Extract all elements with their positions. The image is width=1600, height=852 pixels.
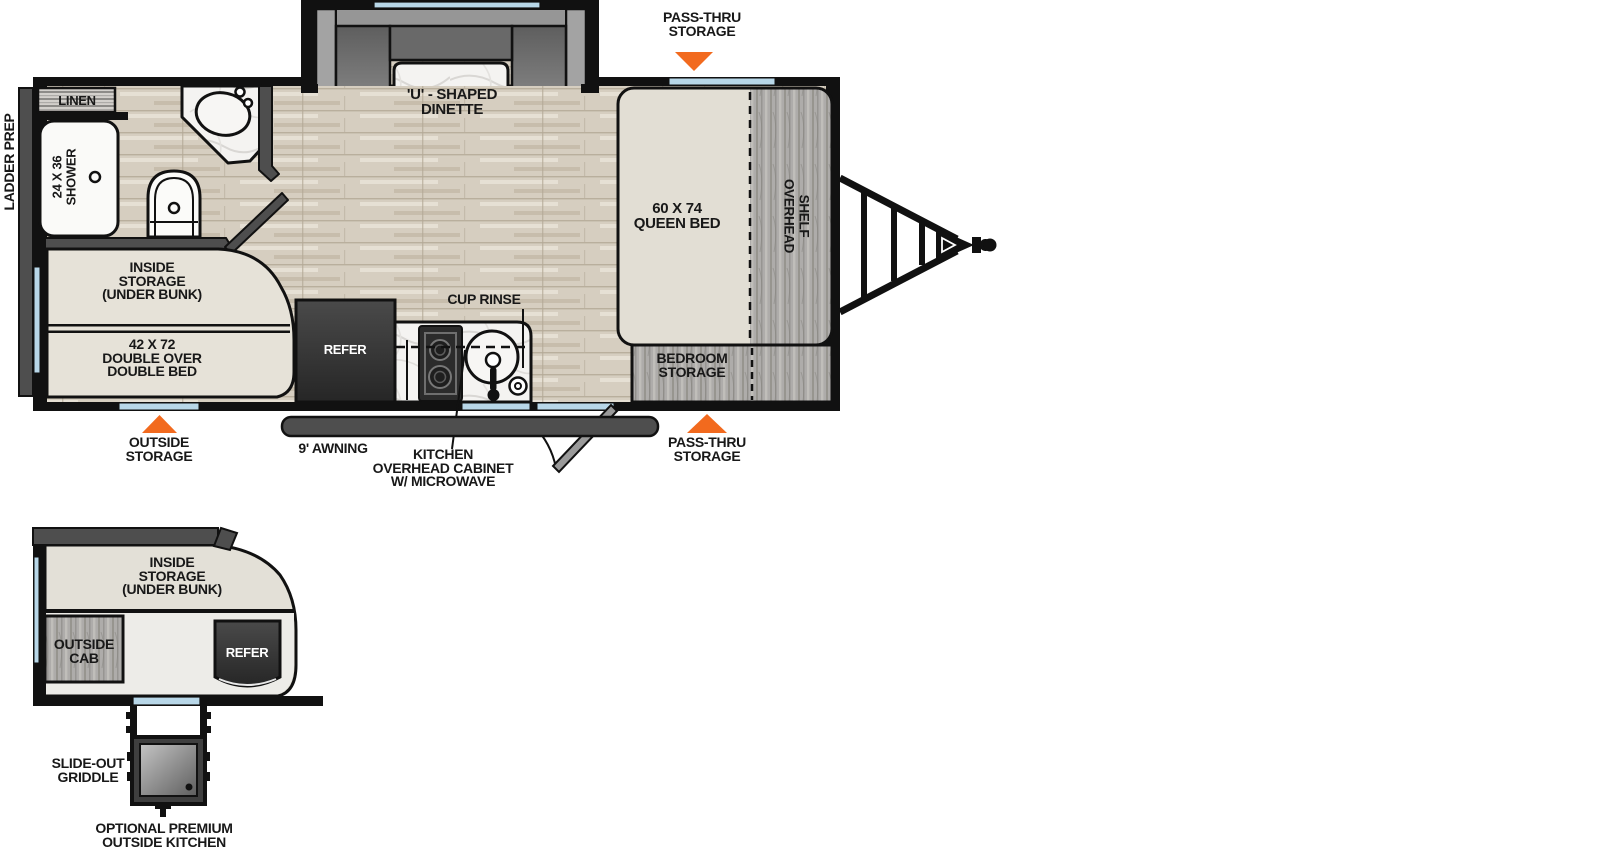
rear-bumper <box>19 88 33 396</box>
inside-storage-label: INSIDESTORAGE(UNDER BUNK) <box>102 261 202 302</box>
outside-cab-label: OUTSIDECAB <box>54 638 114 665</box>
awning-label: 9' AWNING <box>298 442 367 456</box>
shower-label: SHOWER <box>65 149 78 206</box>
cup-rinse-label: CUP RINSE <box>447 293 520 307</box>
pass-thru-storage-front-label: PASS-THRUSTORAGE <box>663 11 741 38</box>
bedroom-storage-label: BEDROOMSTORAGE <box>656 352 727 379</box>
awning-rail <box>282 417 658 436</box>
outside-storage-label: OUTSIDESTORAGE <box>126 436 193 463</box>
outside-kitchen-door <box>133 697 200 705</box>
floorplan-drawing <box>0 0 1600 852</box>
shower-label: 24 X 36 <box>51 156 64 199</box>
ladder-prep-label: LADDER PREP <box>1 113 17 210</box>
outside-storage-marker <box>142 415 177 433</box>
hitch-a-frame <box>840 178 997 312</box>
bunk-window <box>119 403 199 410</box>
linen-label: LINEN <box>58 94 96 107</box>
pass-thru-bottom-marker <box>687 414 727 433</box>
queen-bed-label: 60 X 74QUEEN BED <box>634 201 720 231</box>
u-shaped-dinette-label: 'U' - SHAPEDDINETTE <box>407 87 497 117</box>
overhead-shelf-label: OVERHEAD <box>782 179 797 253</box>
left-wall-window <box>34 267 40 373</box>
double-bed-label: 42 X 72DOUBLE OVERDOUBLE BED <box>102 338 201 379</box>
entry-door-leaf <box>553 405 617 472</box>
pass-thru-storage-rear-label: PASS-THRUSTORAGE <box>668 436 746 463</box>
kitchen-overhead-cabinet-label: KITCHENOVERHEAD CABINETW/ MICROWAVE <box>373 448 514 489</box>
dinette-window <box>374 2 540 8</box>
overhead-shelf-label: SHELF <box>797 195 812 238</box>
refer-2-label: REFER <box>226 646 269 659</box>
pass-thru-top-marker <box>675 52 713 71</box>
floorplan-canvas: LADDER PREP 24 X 36 SHOWER OVERHEAD SHEL… <box>0 0 1600 852</box>
optional-outside-kitchen-caption: OPTIONAL PREMIUMOUTSIDE KITCHEN <box>95 822 232 849</box>
front-window <box>669 78 775 85</box>
refer-label: REFER <box>324 343 367 356</box>
entry-door-opening <box>537 403 614 410</box>
inside-storage-2-label: INSIDESTORAGE(UNDER BUNK) <box>122 556 222 597</box>
slide-out-griddle-label: SLIDE-OUTGRIDDLE <box>52 757 125 784</box>
cup-rinse-fixture <box>510 378 527 395</box>
kitchen-window <box>462 403 530 410</box>
